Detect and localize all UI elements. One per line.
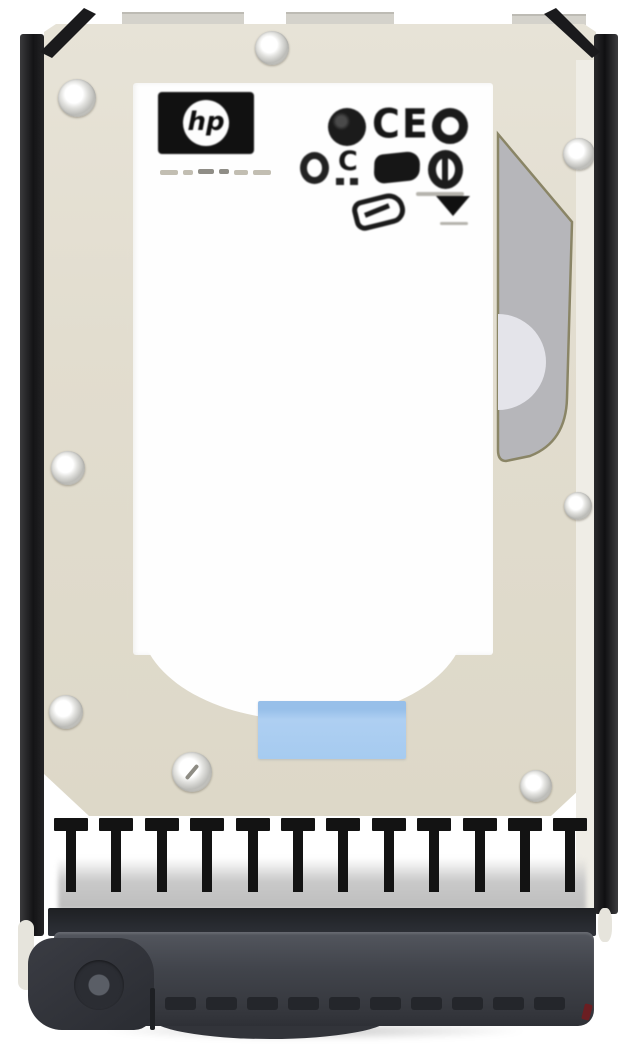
fine-print — [219, 169, 229, 174]
screw — [520, 770, 552, 802]
grip-dash — [534, 997, 565, 1010]
grip-dash — [329, 997, 360, 1010]
latch-seam — [150, 988, 155, 1030]
grip-dash — [452, 997, 483, 1010]
screw — [563, 138, 595, 170]
emi-tooth-stem — [520, 818, 530, 892]
c-ul-mark-icon: C — [338, 146, 358, 177]
left-rail-hook — [40, 8, 96, 58]
right-rail-hook — [544, 8, 600, 58]
c-ul-mark-dot — [350, 178, 358, 185]
service-sticker — [258, 701, 406, 759]
screw — [564, 492, 592, 520]
square-blob-mark-icon — [374, 150, 421, 184]
drive-label-curve — [140, 520, 466, 720]
grip-dash — [247, 997, 278, 1010]
right-rail-tip — [598, 908, 612, 942]
emi-comb — [48, 814, 596, 914]
emi-tooth-stem — [202, 818, 212, 892]
fine-print — [198, 169, 214, 174]
ce-mark-icon: CE — [372, 101, 430, 147]
hp-logo: hp — [158, 92, 254, 154]
grip-dash — [493, 997, 524, 1010]
emi-tooth-stem — [429, 818, 439, 892]
latch-release-button — [74, 960, 124, 1010]
ul-circle-mark-icon — [328, 108, 366, 146]
emi-tooth-stem — [111, 818, 121, 892]
ring-mark-icon — [432, 108, 468, 144]
emi-tooth-stem — [157, 818, 167, 892]
emi-tooth-stem — [66, 818, 76, 892]
screw-slot — [185, 764, 200, 780]
grip-dash — [165, 997, 196, 1010]
fine-print — [183, 170, 193, 175]
fine-print — [440, 222, 468, 225]
triangle-mark-icon — [436, 196, 470, 216]
fine-print — [234, 170, 248, 175]
screw — [51, 451, 85, 485]
fine-print — [253, 170, 271, 175]
grip-dash — [411, 997, 442, 1010]
emi-tooth-stem — [475, 818, 485, 892]
emi-tooth-stem — [338, 818, 348, 892]
product-photo: hp CE C — [0, 0, 640, 1044]
comb-shadow — [58, 858, 586, 910]
rail-hooks — [0, 0, 640, 70]
small-ring-mark-icon — [300, 152, 329, 184]
grip-dashes — [165, 997, 577, 1011]
grip-dash — [206, 997, 237, 1010]
emi-tooth-stem — [384, 818, 394, 892]
screw — [58, 79, 96, 117]
emi-tooth-stem — [565, 818, 575, 892]
left-rail — [20, 34, 44, 936]
right-rail — [594, 34, 618, 914]
spindle-panel-shape — [498, 134, 572, 461]
fine-print — [160, 170, 178, 175]
circle-slash-mark-bar — [442, 152, 448, 186]
emi-tooth-stem — [293, 818, 303, 892]
certification-marks: CE C — [298, 100, 483, 242]
grip-dash — [370, 997, 401, 1010]
grip-dash — [288, 997, 319, 1010]
screw — [49, 695, 83, 729]
hp-logo-text: hp — [187, 109, 224, 135]
emi-tooth-stem — [248, 818, 258, 892]
screw — [172, 752, 212, 792]
c-ul-mark-dot — [336, 178, 344, 185]
hp-logo-circle: hp — [183, 100, 229, 146]
